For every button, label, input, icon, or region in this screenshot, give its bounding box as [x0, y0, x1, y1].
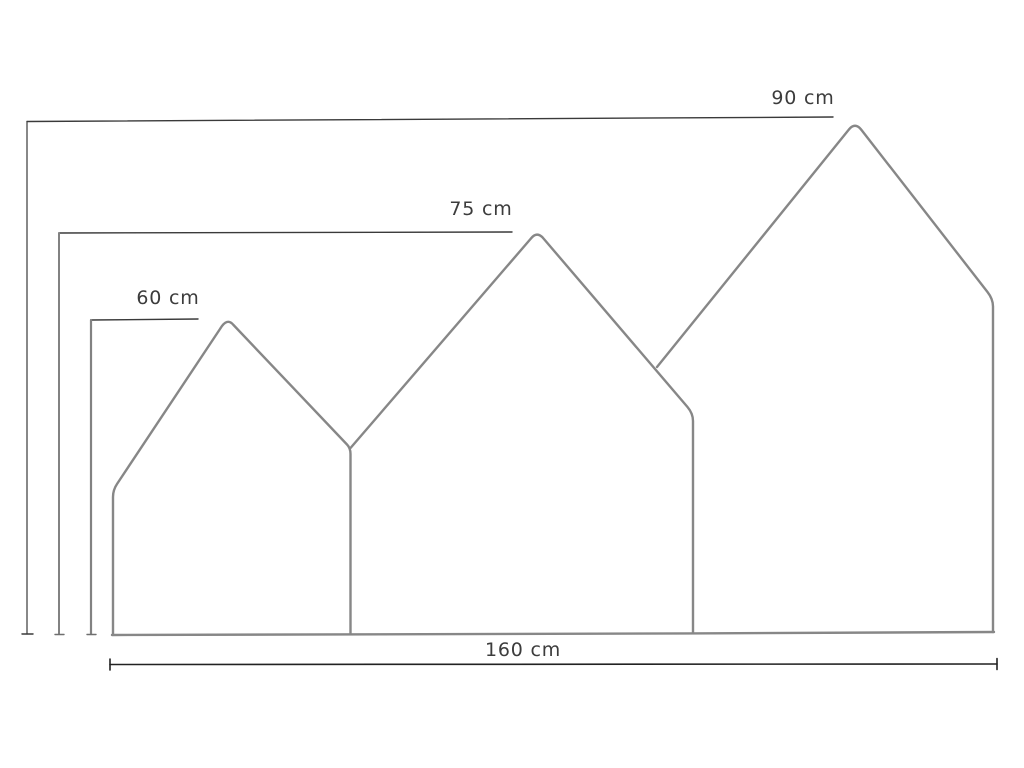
house-outlines	[112, 126, 994, 635]
dimension-label-75cm: 75 cm	[449, 198, 512, 220]
dim-75-horizontal-line	[59, 232, 512, 233]
large-house-outline	[657, 126, 993, 632]
base-line	[112, 632, 994, 635]
small-house-outline	[113, 322, 351, 634]
dimension-60cm-lines	[87, 319, 198, 635]
dim-90-horizontal-line	[27, 117, 833, 122]
dimension-label-60cm: 60 cm	[136, 287, 199, 309]
dimension-75cm-lines	[55, 232, 512, 635]
dim-160-horizontal-line	[110, 664, 997, 665]
dimension-label-90cm: 90 cm	[771, 87, 834, 109]
medium-house-outline	[351, 235, 694, 633]
dimension-label-160cm: 160 cm	[485, 639, 561, 661]
dimension-90cm-lines	[22, 117, 833, 634]
dim-60-horizontal-line	[91, 319, 198, 320]
dimension-diagram: 60 cm 75 cm 90 cm 160 cm	[0, 0, 1024, 768]
